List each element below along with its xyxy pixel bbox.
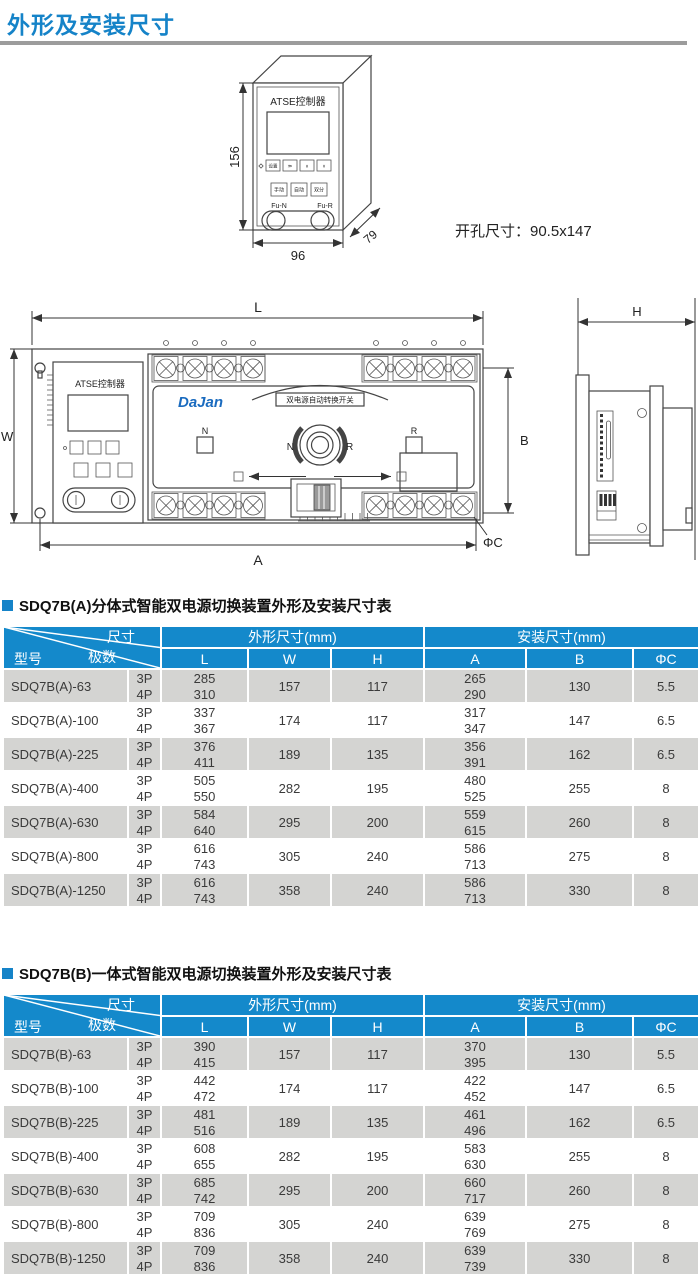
dim-W-cell: 305 <box>248 839 331 873</box>
col-header-A: A <box>424 648 526 669</box>
svg-text:W: W <box>1 429 14 444</box>
model-cell: SDQ7B(B)-100 <box>3 1071 128 1105</box>
dim-L-cell: 285 <box>161 669 248 686</box>
dim-A-cell: 391 <box>424 754 526 771</box>
dim-A-cell: 615 <box>424 822 526 839</box>
model-cell: SDQ7B(B)-800 <box>3 1207 128 1241</box>
dim-A-cell: 660 <box>424 1173 526 1190</box>
dim-C-cell: 6.5 <box>633 737 699 771</box>
bullet-square-icon <box>2 968 13 979</box>
table-row: SDQ7B(A)-12503P6163582405863308 <box>3 873 699 890</box>
dim-C-cell: 8 <box>633 1241 699 1275</box>
poles-cell: 4P <box>128 720 161 737</box>
dim-B-cell: 130 <box>526 1037 633 1071</box>
dim-C-cell: 8 <box>633 839 699 873</box>
table-row: SDQ7B(A)-2253P3761891353561626.5 <box>3 737 699 754</box>
screw-holes-top <box>164 341 466 346</box>
dim-A-cell: 422 <box>424 1071 526 1088</box>
dim-L-cell: 616 <box>161 873 248 890</box>
poles-cell: 3P <box>128 1037 161 1054</box>
dim-W-cell: 305 <box>248 1207 331 1241</box>
switch-body-front: DaJan 双电源自动转换开关 N R N R <box>148 341 480 522</box>
dim-L-cell: 390 <box>161 1037 248 1054</box>
svg-text:A: A <box>253 552 263 568</box>
dimension-96: 96 <box>253 230 343 263</box>
outline-group-header: 外形尺寸(mm) <box>161 626 424 648</box>
dim-L-cell: 472 <box>161 1088 248 1105</box>
dimension-W: W <box>1 349 32 523</box>
dim-A-cell: 461 <box>424 1105 526 1122</box>
controller-module-front: ATSE控制器 <box>47 362 143 523</box>
dim-A-cell: 480 <box>424 771 526 788</box>
dim-H-cell: 240 <box>331 839 424 873</box>
table-a-section: SDQ7B(A)分体式智能双电源切换装置外形及安装尺寸表 尺寸 极数 型号 <box>2 595 698 908</box>
svg-text:R: R <box>411 426 418 436</box>
dim-H-cell: 240 <box>331 1207 424 1241</box>
dim-C-cell: 6.5 <box>633 1105 699 1139</box>
btn-off-label: 双分 <box>314 187 324 194</box>
dim-L-cell: 685 <box>161 1173 248 1190</box>
dimension-L: L <box>32 299 483 345</box>
product-name-label: 双电源自动转换开关 <box>286 395 354 405</box>
dim-L-cell: 743 <box>161 856 248 873</box>
dimension-156: 156 <box>227 83 253 230</box>
col-header-H: H <box>331 648 424 669</box>
model-cell: SDQ7B(B)-63 <box>3 1037 128 1071</box>
install-group-header: 安装尺寸(mm) <box>424 994 699 1016</box>
poles-cell: 3P <box>128 771 161 788</box>
dim-A-cell: 639 <box>424 1241 526 1258</box>
table-row: SDQ7B(A)-633P2851571172651305.5 <box>3 669 699 686</box>
dim-L-cell: 584 <box>161 805 248 822</box>
dim-L-cell: 481 <box>161 1105 248 1122</box>
poles-cell: 4P <box>128 1156 161 1173</box>
dim-W-cell: 174 <box>248 1071 331 1105</box>
svg-text:156: 156 <box>227 146 242 168</box>
dim-L-cell: 608 <box>161 1139 248 1156</box>
dim-H-cell: 200 <box>331 805 424 839</box>
table-row: SDQ7B(A)-1003P3371741173171476.5 <box>3 703 699 720</box>
corner-size-label: 尺寸 <box>107 998 135 1012</box>
dim-B-cell: 330 <box>526 1241 633 1275</box>
col-header-W: W <box>248 648 331 669</box>
dim-A-cell: 586 <box>424 839 526 856</box>
btn-next-label: ≫ <box>288 164 293 169</box>
poles-cell: 3P <box>128 1241 161 1258</box>
dim-A-cell: 356 <box>424 737 526 754</box>
dim-L-cell: 836 <box>161 1258 248 1275</box>
dim-L-cell: 836 <box>161 1224 248 1241</box>
title-divider <box>0 41 687 45</box>
svg-text:B: B <box>520 433 529 448</box>
svg-text:96: 96 <box>291 248 305 263</box>
poles-cell: 3P <box>128 805 161 822</box>
col-header-A: A <box>424 1016 526 1037</box>
dim-L-cell: 415 <box>161 1054 248 1071</box>
col-header-L: L <box>161 1016 248 1037</box>
dim-C-cell: 5.5 <box>633 1037 699 1071</box>
dim-C-cell: 8 <box>633 805 699 839</box>
dim-A-cell: 739 <box>424 1258 526 1275</box>
btn-auto-label: 自动 <box>294 187 304 194</box>
dim-B-cell: 275 <box>526 1207 633 1241</box>
model-cell: SDQ7B(B)-400 <box>3 1139 128 1173</box>
poles-cell: 4P <box>128 686 161 703</box>
dim-L-cell: 709 <box>161 1207 248 1224</box>
table-row: SDQ7B(B)-1003P4421741174221476.5 <box>3 1071 699 1088</box>
poles-cell: 3P <box>128 1173 161 1190</box>
brand-logo: DaJan <box>178 394 223 411</box>
model-cell: SDQ7B(A)-800 <box>3 839 128 873</box>
model-cell: SDQ7B(A)-100 <box>3 703 128 737</box>
poles-cell: 4P <box>128 1224 161 1241</box>
poles-cell: 4P <box>128 856 161 873</box>
dim-H-cell: 135 <box>331 737 424 771</box>
dim-W-cell: 174 <box>248 703 331 737</box>
dim-L-cell: 709 <box>161 1241 248 1258</box>
corner-poles-label: 极数 <box>88 650 116 664</box>
switch-installation-drawing: L ATSE控制器 <box>0 283 700 583</box>
model-cell: SDQ7B(B)-1250 <box>3 1241 128 1275</box>
dim-B-cell: 260 <box>526 1173 633 1207</box>
dim-C-cell: 8 <box>633 771 699 805</box>
corner-model-label: 型号 <box>14 652 42 666</box>
table-row: SDQ7B(B)-8003P7093052406392758 <box>3 1207 699 1224</box>
poles-cell: 4P <box>128 754 161 771</box>
dim-C-cell: 8 <box>633 1173 699 1207</box>
dim-L-cell: 516 <box>161 1122 248 1139</box>
install-group-header: 安装尺寸(mm) <box>424 626 699 648</box>
poles-cell: 4P <box>128 788 161 805</box>
poles-cell: 3P <box>128 1139 161 1156</box>
dim-C-cell: 8 <box>633 1139 699 1173</box>
model-cell: SDQ7B(B)-225 <box>3 1105 128 1139</box>
dim-L-cell: 743 <box>161 890 248 907</box>
dim-W-cell: 157 <box>248 1037 331 1071</box>
dim-A-cell: 452 <box>424 1088 526 1105</box>
dim-B-cell: 255 <box>526 771 633 805</box>
dim-H-cell: 117 <box>331 1071 424 1105</box>
dim-W-cell: 358 <box>248 1241 331 1275</box>
table-row: SDQ7B(B)-2253P4811891354611626.5 <box>3 1105 699 1122</box>
dim-H-cell: 117 <box>331 669 424 703</box>
dim-B-cell: 147 <box>526 1071 633 1105</box>
table-a-title: SDQ7B(A)分体式智能双电源切换装置外形及安装尺寸表 <box>2 595 698 616</box>
poles-cell: 4P <box>128 1190 161 1207</box>
dim-B-cell: 255 <box>526 1139 633 1173</box>
dim-A-cell: 713 <box>424 856 526 873</box>
bullet-square-icon <box>2 600 13 611</box>
dim-A-cell: 395 <box>424 1054 526 1071</box>
dim-A-cell: 265 <box>424 669 526 686</box>
col-header-C: ΦC <box>633 1016 699 1037</box>
poles-cell: 3P <box>128 669 161 686</box>
dim-A-cell: 713 <box>424 890 526 907</box>
dim-L-cell: 367 <box>161 720 248 737</box>
dim-L-cell: 337 <box>161 703 248 720</box>
dim-H-cell: 240 <box>331 873 424 907</box>
svg-text:79: 79 <box>361 227 380 247</box>
table-row: SDQ7B(B)-12503P7093582406393308 <box>3 1241 699 1258</box>
dimension-table-a: 尺寸 极数 型号 外形尺寸(mm) 安装尺寸(mm) L W H A B ΦC … <box>2 625 700 908</box>
controller-brand-label: ATSE控制器 <box>270 95 325 108</box>
dim-C-cell: 8 <box>633 873 699 907</box>
manual-slider <box>291 479 341 517</box>
dim-B-cell: 275 <box>526 839 633 873</box>
dim-C-cell: 8 <box>633 1207 699 1241</box>
dim-L-cell: 411 <box>161 754 248 771</box>
dim-A-cell: 347 <box>424 720 526 737</box>
dim-A-cell: 290 <box>424 686 526 703</box>
dim-H-cell: 200 <box>331 1173 424 1207</box>
dim-A-cell: 317 <box>424 703 526 720</box>
table-row: SDQ7B(A)-4003P5052821954802558 <box>3 771 699 788</box>
poles-cell: 3P <box>128 1105 161 1122</box>
poles-cell: 4P <box>128 1088 161 1105</box>
dim-B-cell: 162 <box>526 737 633 771</box>
model-cell: SDQ7B(A)-63 <box>3 669 128 703</box>
dim-W-cell: 189 <box>248 737 331 771</box>
poles-cell: 3P <box>128 1071 161 1088</box>
table-b-section: SDQ7B(B)一体式智能双电源切换装置外形及安装尺寸表 尺寸 极数 型号 <box>2 963 698 1276</box>
model-cell: SDQ7B(A)-1250 <box>3 873 128 907</box>
dim-W-cell: 157 <box>248 669 331 703</box>
table-row: SDQ7B(A)-6303P5842952005592608 <box>3 805 699 822</box>
poles-cell: 3P <box>128 873 161 890</box>
dim-A-cell: 525 <box>424 788 526 805</box>
corner-model-label: 型号 <box>14 1020 42 1034</box>
col-header-B: B <box>526 1016 633 1037</box>
dim-H-cell: 117 <box>331 703 424 737</box>
dim-W-cell: 358 <box>248 873 331 907</box>
svg-text:N: N <box>202 426 209 436</box>
corner-header-cell: 尺寸 极数 型号 <box>3 626 161 669</box>
table-row: SDQ7B(B)-633P3901571173701305.5 <box>3 1037 699 1054</box>
dim-A-cell: 370 <box>424 1037 526 1054</box>
col-header-H: H <box>331 1016 424 1037</box>
dim-L-cell: 376 <box>161 737 248 754</box>
dim-B-cell: 147 <box>526 703 633 737</box>
dim-A-cell: 559 <box>424 805 526 822</box>
fuse-n-label: Fu-N <box>271 203 287 210</box>
dim-W-cell: 282 <box>248 1139 331 1173</box>
dim-A-cell: 639 <box>424 1207 526 1224</box>
corner-poles-label: 极数 <box>88 1018 116 1032</box>
poles-cell: 4P <box>128 1122 161 1139</box>
poles-cell: 3P <box>128 703 161 720</box>
dim-B-cell: 130 <box>526 669 633 703</box>
dim-L-cell: 742 <box>161 1190 248 1207</box>
table-row: SDQ7B(B)-6303P6852952006602608 <box>3 1173 699 1190</box>
col-header-W: W <box>248 1016 331 1037</box>
catalog-page: 外形及安装尺寸 ATSE控制器 设置 ≫ ∧ <box>0 0 700 1276</box>
controller-outline-drawing: ATSE控制器 设置 ≫ ∧ ∨ 手动 自动 双分 F <box>145 50 625 270</box>
model-cell: SDQ7B(A)-400 <box>3 771 128 805</box>
dim-B-cell: 162 <box>526 1105 633 1139</box>
dim-A-cell: 769 <box>424 1224 526 1241</box>
controller-3d-box: ATSE控制器 设置 ≫ ∧ ∨ 手动 自动 双分 F <box>253 56 371 230</box>
dim-A-cell: 583 <box>424 1139 526 1156</box>
col-header-L: L <box>161 648 248 669</box>
dimension-B: B <box>483 368 529 513</box>
dim-W-cell: 282 <box>248 771 331 805</box>
fuse-r-label: Fu-R <box>317 203 333 210</box>
svg-text:L: L <box>254 299 262 315</box>
model-cell: SDQ7B(B)-630 <box>3 1173 128 1207</box>
col-header-C: ΦC <box>633 648 699 669</box>
dim-W-cell: 295 <box>248 805 331 839</box>
dim-L-cell: 640 <box>161 822 248 839</box>
dim-A-cell: 586 <box>424 873 526 890</box>
dim-B-cell: 260 <box>526 805 633 839</box>
dimension-A: A <box>40 519 476 568</box>
model-cell: SDQ7B(A)-225 <box>3 737 128 771</box>
svg-text:ΦC: ΦC <box>483 535 503 550</box>
poles-cell: 4P <box>128 890 161 907</box>
dim-A-cell: 496 <box>424 1122 526 1139</box>
table-b-title: SDQ7B(B)一体式智能双电源切换装置外形及安装尺寸表 <box>2 963 698 984</box>
dim-C-cell: 6.5 <box>633 703 699 737</box>
poles-cell: 4P <box>128 1258 161 1275</box>
btn-manual-label: 手动 <box>274 187 284 194</box>
poles-cell: 4P <box>128 822 161 839</box>
corner-size-label: 尺寸 <box>107 630 135 644</box>
dim-H-cell: 117 <box>331 1037 424 1071</box>
dim-W-cell: 189 <box>248 1105 331 1139</box>
poles-cell: 3P <box>128 839 161 856</box>
svg-text:N: N <box>287 442 294 453</box>
dim-H-cell: 195 <box>331 771 424 805</box>
poles-cell: 4P <box>128 1054 161 1071</box>
dim-A-cell: 630 <box>424 1156 526 1173</box>
svg-text:H: H <box>632 304 641 319</box>
btn-set-label: 设置 <box>269 163 278 170</box>
poles-cell: 3P <box>128 737 161 754</box>
dim-L-cell: 655 <box>161 1156 248 1173</box>
table-row: SDQ7B(A)-8003P6163052405862758 <box>3 839 699 856</box>
dim-B-cell: 330 <box>526 873 633 907</box>
corner-header-cell: 尺寸 极数 型号 <box>3 994 161 1037</box>
cutout-size-note: 开孔尺寸：90.5x147 <box>455 223 592 240</box>
dim-L-cell: 310 <box>161 686 248 703</box>
page-title: 外形及安装尺寸 <box>7 6 175 40</box>
dim-H-cell: 240 <box>331 1241 424 1275</box>
module-brand-label: ATSE控制器 <box>75 378 125 389</box>
dim-H-cell: 195 <box>331 1139 424 1173</box>
poles-cell: 3P <box>128 1207 161 1224</box>
dim-L-cell: 616 <box>161 839 248 856</box>
dimension-table-b: 尺寸 极数 型号 外形尺寸(mm) 安装尺寸(mm) L W H A B ΦC … <box>2 993 700 1276</box>
dim-L-cell: 442 <box>161 1071 248 1088</box>
switch-side-view: H <box>576 298 695 560</box>
dim-C-cell: 6.5 <box>633 1071 699 1105</box>
dim-L-cell: 550 <box>161 788 248 805</box>
dim-L-cell: 505 <box>161 771 248 788</box>
svg-text:R: R <box>346 442 353 453</box>
dim-W-cell: 295 <box>248 1173 331 1207</box>
table-row: SDQ7B(B)-4003P6082821955832558 <box>3 1139 699 1156</box>
outline-group-header: 外形尺寸(mm) <box>161 994 424 1016</box>
model-cell: SDQ7B(A)-630 <box>3 805 128 839</box>
dim-C-cell: 5.5 <box>633 669 699 703</box>
col-header-B: B <box>526 648 633 669</box>
dim-H-cell: 135 <box>331 1105 424 1139</box>
dim-A-cell: 717 <box>424 1190 526 1207</box>
